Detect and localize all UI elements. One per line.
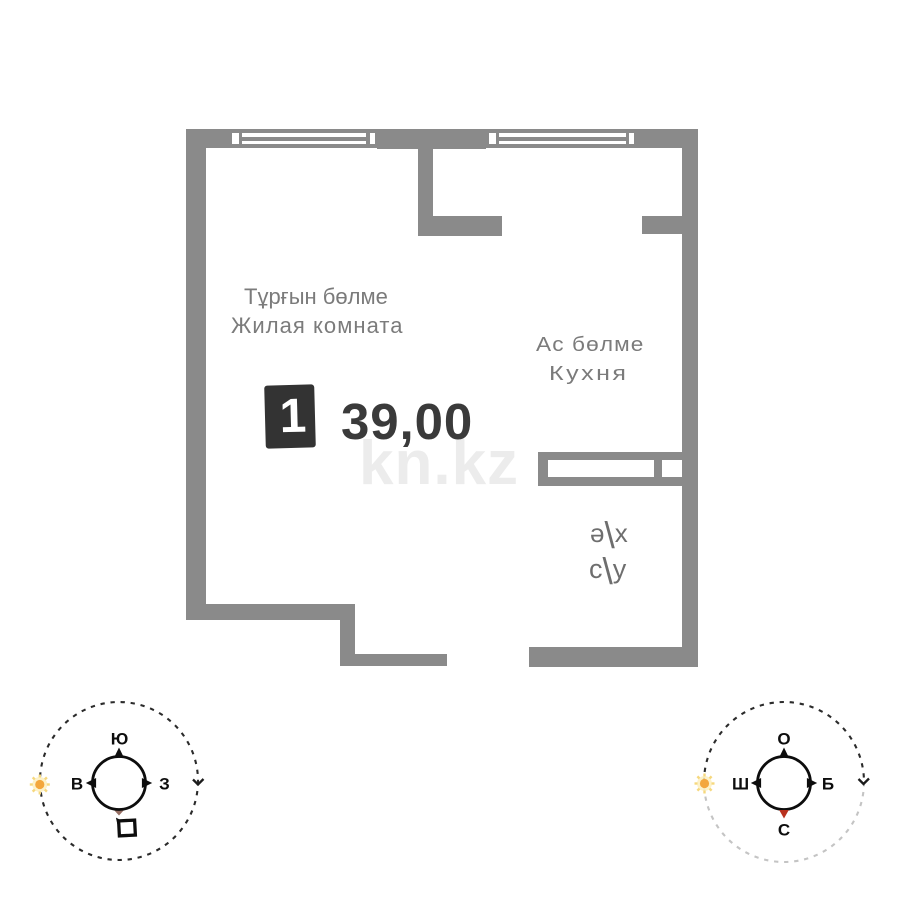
svg-text:В: В xyxy=(71,775,83,794)
svg-text:Б: Б xyxy=(822,775,834,794)
svg-text:Ш: Ш xyxy=(732,775,749,794)
svg-text:О: О xyxy=(777,730,790,749)
svg-text:З: З xyxy=(159,775,170,794)
svg-text:С: С xyxy=(778,821,790,840)
svg-text:Ю: Ю xyxy=(111,730,129,749)
